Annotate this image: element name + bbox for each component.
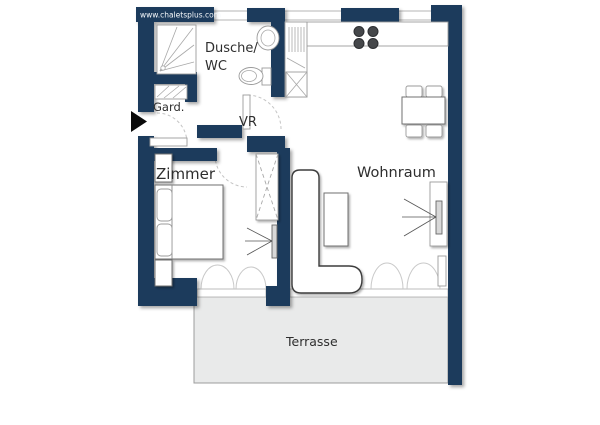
dining-chair (426, 125, 442, 137)
dining-set (402, 86, 445, 137)
room-label-terrasse: Terrasse (285, 334, 338, 349)
dining-chair (406, 125, 422, 137)
wohnraum-tv (402, 182, 447, 246)
wohnraum-terrace-door-arc-1 (371, 263, 403, 289)
zimmer-tv (245, 225, 277, 258)
wohnraum-terrace-door-arc-2 (407, 263, 440, 289)
room-label-dusche-line1: Dusche/ (205, 41, 258, 56)
entrance-arrow-icon (131, 111, 147, 132)
coffee-table (324, 193, 348, 246)
pillow (157, 224, 172, 256)
watermark-url: www.chaletsplus.com (140, 11, 221, 20)
toilet (239, 68, 271, 86)
terrace-door-zimmer-threshold (197, 289, 266, 297)
wall-bath-bottom (197, 125, 242, 138)
room-label-gard: Gard. (153, 100, 184, 114)
zimmer-terrace-door-arc-1 (201, 265, 234, 289)
wohnraum-furniture (292, 170, 447, 293)
room-label-wohnraum: Wohnraum (357, 165, 436, 181)
wall-zimmer-top (138, 148, 217, 161)
wall-top-c (341, 8, 399, 22)
pillow (157, 189, 172, 221)
floorplan-image: www.chaletsplus.com Dusche/ WC Gard. VR … (0, 0, 600, 425)
dining-table (402, 97, 445, 124)
wall-terrace-stub (266, 286, 290, 306)
kitchen (285, 22, 448, 97)
dining-chair (426, 86, 442, 97)
dining-chair (406, 86, 422, 97)
kitchen-counter (285, 22, 448, 46)
garderobe-closet (155, 85, 187, 99)
room-label-dusche-line2: WC (205, 59, 227, 74)
wall-room-divider (277, 148, 290, 293)
sink (257, 26, 279, 50)
entrance-door-leaf (150, 138, 187, 146)
side-door-leaf (438, 256, 446, 286)
zimmer-door-arc (215, 155, 247, 187)
nightstand (155, 260, 172, 286)
floorplan-page: www.chaletsplus.com Dusche/ WC Gard. VR … (0, 0, 600, 425)
wall-right (448, 5, 462, 385)
zimmer-terrace-door-arc-2 (236, 267, 266, 289)
room-label-zimmer: Zimmer (156, 165, 216, 183)
zimmer-wardrobe (256, 154, 278, 220)
room-label-vr: VR (239, 115, 257, 130)
wall-left-upper (138, 7, 154, 112)
bed (155, 185, 223, 259)
wall-top-b (247, 8, 285, 22)
